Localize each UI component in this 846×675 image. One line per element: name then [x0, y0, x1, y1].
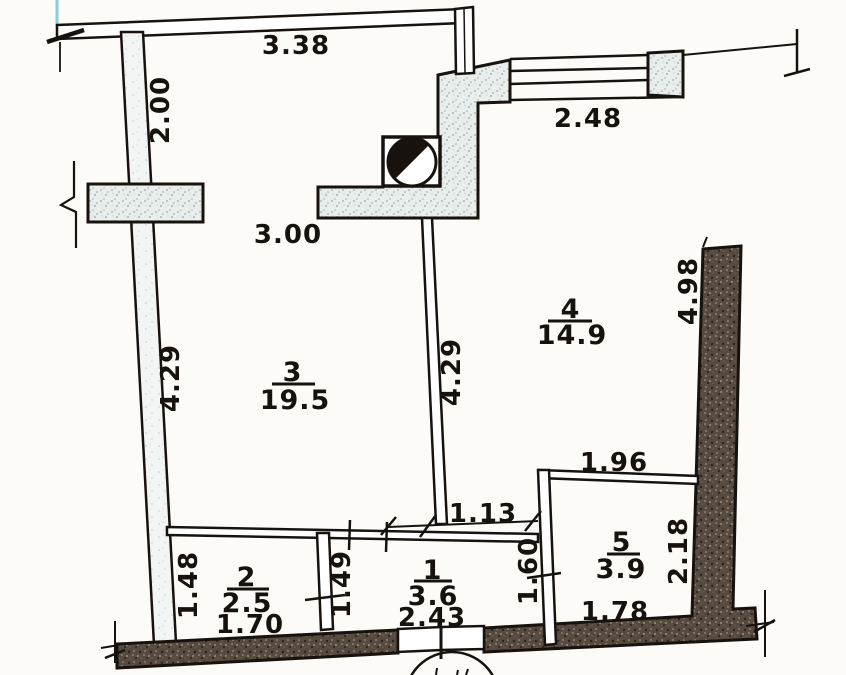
dim-window-width: 2.48: [554, 104, 622, 134]
dim-room2-left: 1.48: [174, 551, 204, 619]
dim-room5-right: 2.18: [664, 517, 694, 585]
dim-room5-left: 1.60: [514, 537, 544, 605]
hall-wall-tick-left: [349, 520, 350, 550]
dim-right-wall-height: 4.98: [674, 257, 704, 325]
dim-room5-bottom: 1.78: [581, 597, 649, 627]
room-area: 19.5: [260, 385, 331, 416]
dim-balcony-width: 3.00: [254, 220, 322, 250]
top-wall-stub-inner-line: [464, 8, 465, 73]
room-area: 3.6: [408, 581, 459, 612]
room-area: 3.9: [596, 554, 647, 585]
left-pier: [88, 184, 203, 222]
room-area: 14.9: [537, 320, 608, 351]
floor-plan-page: 3.38 2.00 2.48 3.00 4.29 4.29 4.98 1.96 …: [0, 0, 846, 675]
vent-stack-icon: [383, 137, 440, 186]
dim-room3-left-height: 4.29: [156, 344, 186, 412]
dim-left-upper: 2.00: [146, 76, 176, 144]
floor-plan-canvas: 3.38 2.00 2.48 3.00 4.29 4.29 4.98 1.96 …: [0, 0, 846, 675]
dim-room5-top: 1.96: [580, 448, 648, 478]
dim-hall-opening: 1.13: [449, 499, 517, 529]
dim-divider-height: 1.49: [327, 550, 357, 618]
room-area: 2.5: [222, 588, 273, 619]
dim-top-width: 3.38: [262, 31, 330, 61]
window-pier: [648, 51, 683, 97]
dim-room3-right-height: 4.29: [437, 338, 467, 406]
